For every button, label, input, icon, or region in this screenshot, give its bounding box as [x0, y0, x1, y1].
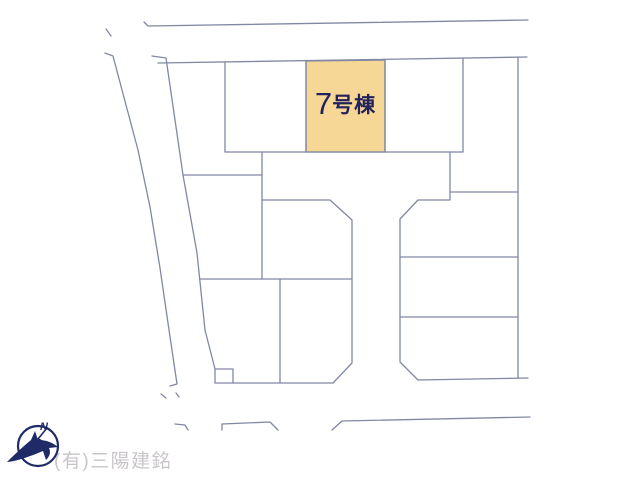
top-road-line: [144, 20, 528, 26]
road-left-edge: [105, 53, 177, 386]
center-parcel-outline: [262, 200, 352, 383]
unit-suffix: 号棟: [332, 89, 376, 119]
road-end-dash-left: [161, 394, 166, 398]
road-end-dash-right: [176, 393, 179, 397]
north-label: N: [40, 421, 49, 433]
unit-label: 7号棟: [306, 76, 385, 132]
road-corner-box: [215, 369, 233, 383]
bottom-road-segment-2: [222, 422, 278, 430]
site-plan-image: N 7号棟 (有)三陽建銘: [0, 0, 640, 480]
parcel-map: N: [0, 0, 640, 480]
road-right-edge: [152, 56, 215, 369]
bottom-road-segment-3: [332, 417, 530, 430]
company-watermark: (有)三陽建銘: [54, 446, 172, 473]
bottom-road-segment-1: [175, 424, 188, 430]
bird-logo-shape: [7, 431, 58, 462]
right-column-left-boundary: [400, 152, 528, 380]
compass-icon: N: [7, 421, 58, 466]
road-left-edge-upper-dash: [106, 29, 111, 36]
unit-number: 7: [315, 86, 332, 122]
